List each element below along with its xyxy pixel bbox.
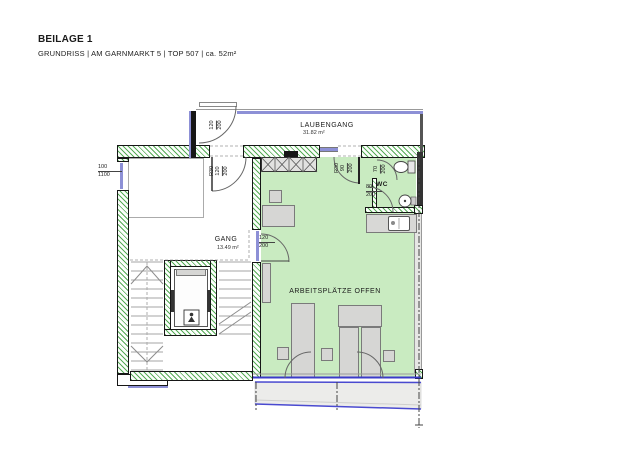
railing-hairline [196, 109, 423, 110]
desk-a [291, 303, 315, 378]
chair-b1 [321, 348, 333, 361]
dim-wc-door: 70 200 [373, 155, 387, 183]
divider-wall-lower [252, 262, 261, 378]
elevator-car [174, 269, 208, 327]
dim-side-entry-door: R30 90 200 [336, 151, 351, 185]
lower-edge-glazing [128, 386, 168, 388]
page-subtitle: GRUNDRISS | AM GARNMARKT 5 | TOP 507 | c… [38, 49, 237, 58]
right-window-band [414, 213, 422, 373]
desk-b-top [338, 305, 382, 327]
left-wall-a [117, 158, 129, 162]
wc-bottom-wall [365, 207, 420, 213]
laubengang-area: 31.82 m² [303, 130, 325, 136]
wall-top-right [361, 145, 425, 158]
lift-wall-bottom [164, 329, 217, 336]
wall-top-left [117, 145, 210, 158]
wc-right-wall [417, 152, 423, 207]
dim-balcony-gate: 120 200 [208, 110, 224, 140]
desk-b-left [339, 327, 359, 378]
stair-treads-left [131, 262, 163, 370]
sideboard [262, 263, 271, 303]
laubengang-label: LAUBENGANG [277, 122, 377, 129]
laubengang-right-end [420, 111, 423, 152]
chair-a [277, 347, 289, 360]
stair-bottom-wall [130, 371, 253, 381]
chair-b2 [383, 350, 395, 362]
lift-wall-left [164, 260, 171, 336]
stair-treads-right [219, 262, 251, 334]
left-wall-b [117, 190, 129, 374]
chair-top [269, 190, 282, 203]
closet [261, 157, 317, 172]
dim-hall-door: 120 200 [259, 235, 275, 250]
desk-b-right [361, 327, 381, 378]
divider-wall-upper [252, 158, 261, 230]
pier-block-bottom [415, 369, 423, 379]
page-title: BEILAGE 1 [38, 34, 93, 45]
gang-label: GANG [206, 236, 246, 243]
pier-block-top [414, 205, 423, 214]
workspace-label: ARBEITSPLÄTZE OFFEN [289, 288, 381, 295]
elevator-door-machine [176, 269, 206, 276]
elevator-rail-right [207, 290, 210, 312]
dim-vestibule-door: 80 200 [366, 184, 382, 199]
laubengang-railing [237, 111, 423, 114]
gang-area: 13.49 m² [217, 245, 239, 251]
terrace-band [255, 382, 421, 409]
kitchen-sink [388, 216, 410, 231]
floorplan-page: BEILAGE 1 GRUNDRISS | AM GARNMARKT 5 | T… [0, 0, 640, 452]
laubengang-left-wall [189, 111, 196, 158]
elevator-rail-left [171, 290, 174, 312]
dim-entry-door: R30 120 200 [211, 153, 227, 189]
balcony-gate-leaf [199, 102, 237, 107]
desk-top [262, 205, 295, 227]
adjacent-unit-outline [128, 158, 204, 218]
lift-wall-right [210, 260, 217, 336]
dim-left-window: 100 1100 [98, 164, 122, 179]
